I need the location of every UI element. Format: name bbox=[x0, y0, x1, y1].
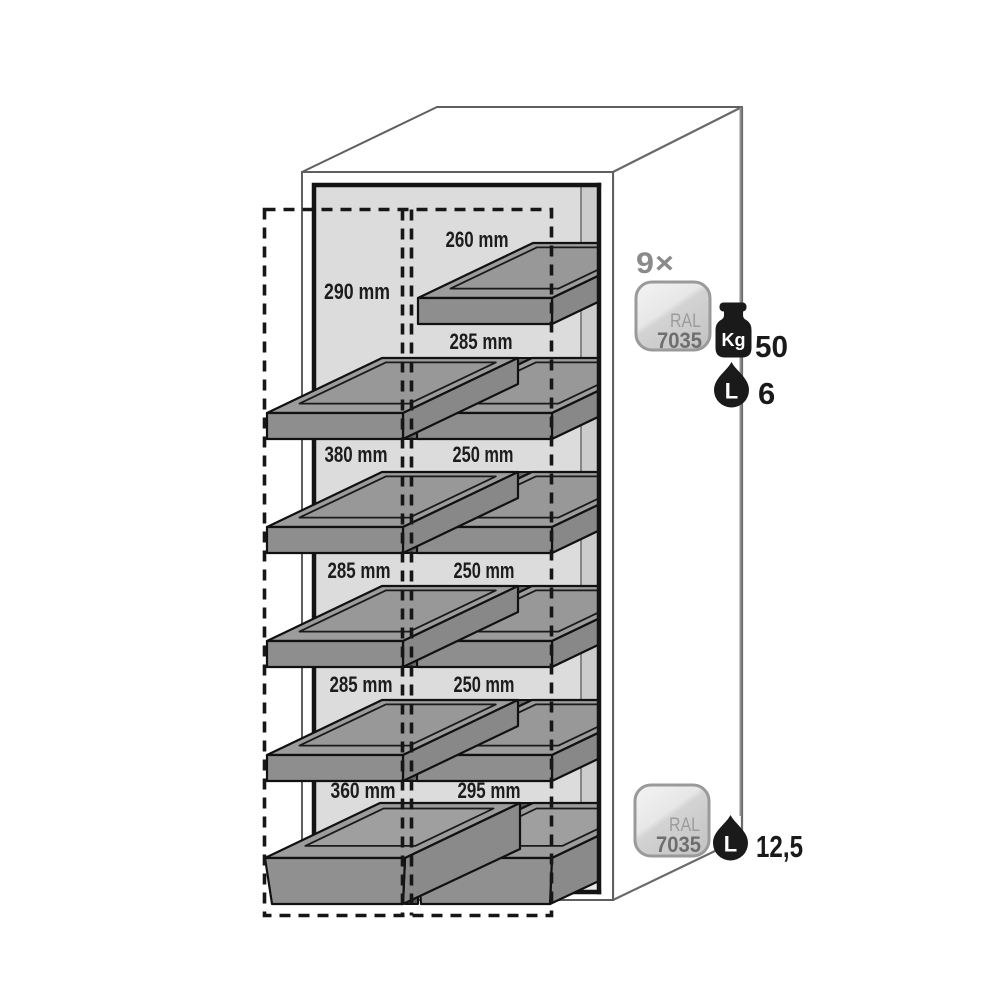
ral-code-label: 7035 bbox=[657, 328, 702, 353]
weight-unit-label: Kg bbox=[722, 330, 746, 350]
dim-label: 290 mm bbox=[324, 279, 390, 304]
tray-face bbox=[418, 298, 552, 324]
tray-face bbox=[267, 413, 403, 439]
tray-quantity: 9× bbox=[636, 247, 675, 280]
dim-label: 380 mm bbox=[325, 442, 388, 467]
dim-label: 250 mm bbox=[454, 672, 515, 697]
dim-label: 250 mm bbox=[454, 558, 515, 583]
cabinet-right-face bbox=[613, 107, 742, 900]
shelf-volume-value: 6 bbox=[758, 376, 775, 411]
dim-label: 360 mm bbox=[331, 778, 396, 803]
ral-7035-badge-shelf: RAL 7035 bbox=[636, 282, 710, 353]
ral-7035-badge-sump: RAL 7035 bbox=[635, 785, 709, 857]
dim-label: 285 mm bbox=[328, 558, 391, 583]
volume-unit-label: L bbox=[725, 379, 738, 404]
safety-cabinet-diagram: 290 mm 260 mm 285 mm 380 mm 250 mm 285 m… bbox=[0, 0, 1000, 1000]
dim-label: 260 mm bbox=[446, 227, 509, 252]
dim-label: 285 mm bbox=[450, 329, 513, 354]
ral-code-label: 7035 bbox=[656, 832, 701, 857]
load-value: 50 bbox=[755, 329, 788, 364]
dim-label: 295 mm bbox=[458, 778, 521, 803]
cabinet-diagram-page: 290 mm 260 mm 285 mm 380 mm 250 mm 285 m… bbox=[0, 0, 1000, 1000]
tray-face bbox=[267, 641, 403, 667]
sump-volume-value: 12,5 bbox=[756, 829, 803, 864]
tray-face bbox=[267, 527, 403, 553]
dim-label: 285 mm bbox=[330, 672, 393, 697]
volume-unit-label: L bbox=[724, 832, 737, 857]
tray-face bbox=[265, 858, 405, 904]
dim-label: 250 mm bbox=[453, 442, 514, 467]
